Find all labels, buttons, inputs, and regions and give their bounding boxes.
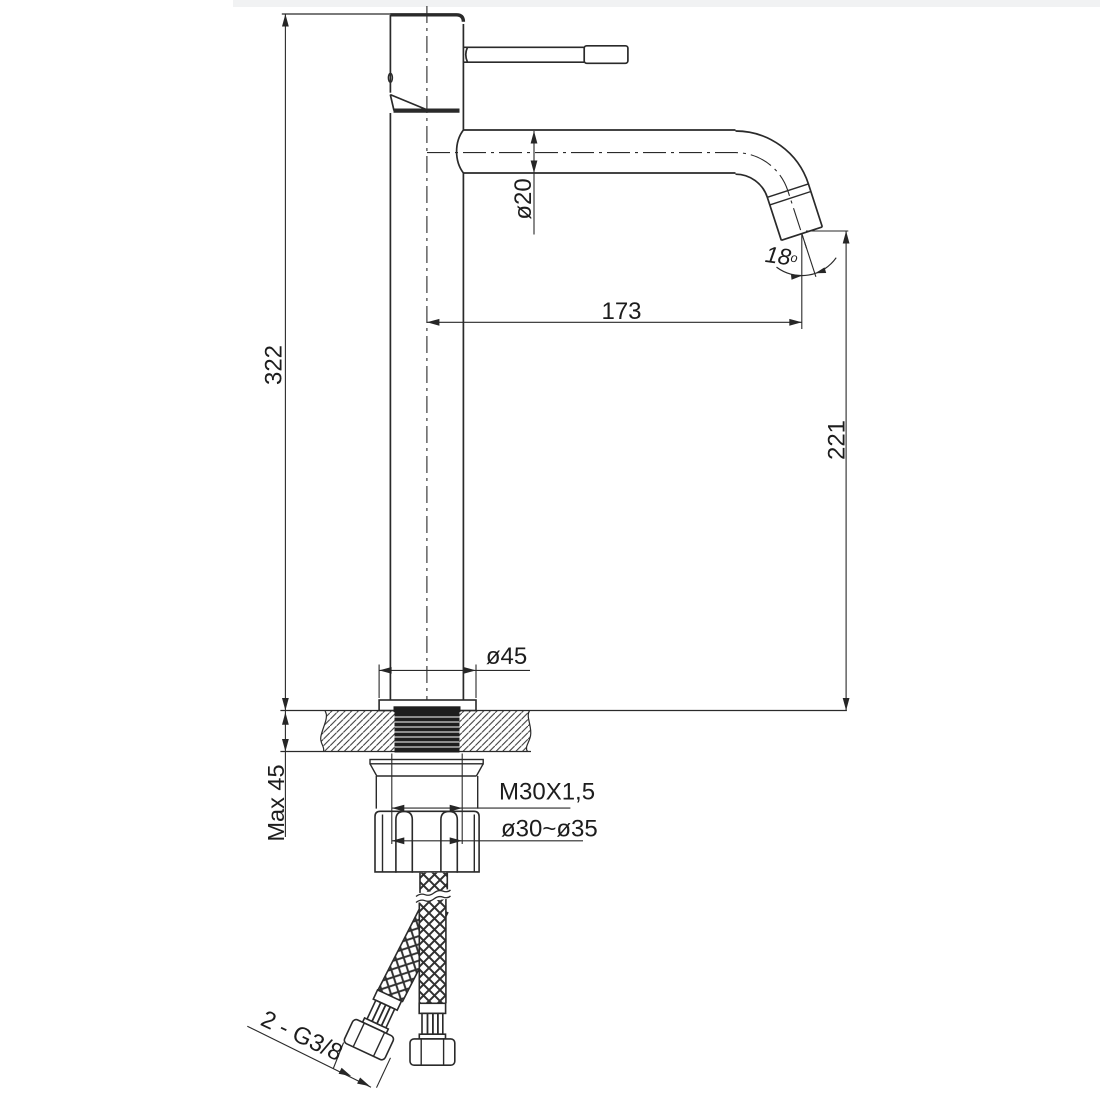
svg-text:ø45: ø45 [486, 643, 527, 670]
svg-text:322: 322 [260, 345, 287, 385]
svg-text:Max 45: Max 45 [263, 764, 289, 841]
svg-text:M30X1,5: M30X1,5 [499, 779, 595, 806]
svg-text:ø30~ø35: ø30~ø35 [501, 816, 598, 843]
svg-text:18: 18 [764, 241, 793, 270]
svg-text:221: 221 [824, 420, 851, 460]
svg-text:ø20: ø20 [510, 178, 537, 219]
svg-text:173: 173 [601, 298, 641, 325]
